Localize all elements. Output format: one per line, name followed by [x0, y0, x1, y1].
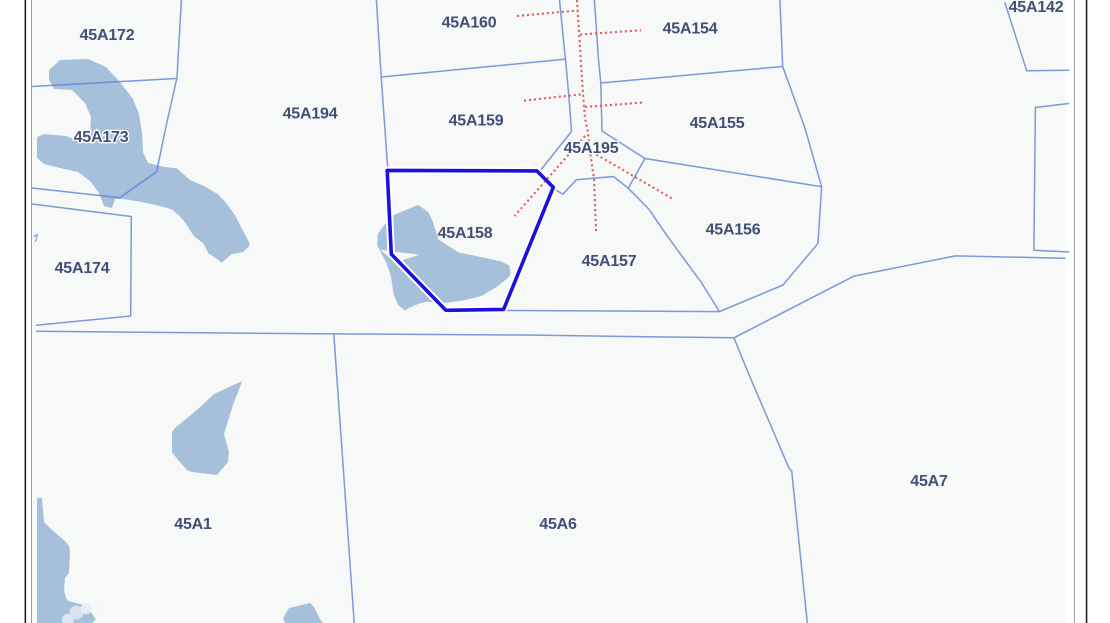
svg-text:45A160: 45A160: [442, 15, 497, 32]
svg-text:45A173: 45A173: [74, 129, 129, 146]
svg-text:45A1: 45A1: [174, 516, 212, 533]
svg-text:45A7: 45A7: [910, 473, 948, 490]
svg-text:45A158: 45A158: [438, 225, 493, 242]
svg-text:45A154: 45A154: [663, 21, 718, 38]
svg-text:45A156: 45A156: [706, 222, 761, 239]
svg-text:45A142: 45A142: [1009, 0, 1064, 16]
svg-text:45A195: 45A195: [564, 140, 619, 157]
svg-text:45A6: 45A6: [539, 516, 577, 533]
svg-text:45A159: 45A159: [449, 113, 504, 130]
svg-text:45A194: 45A194: [283, 106, 338, 123]
svg-text:45A174: 45A174: [55, 260, 110, 277]
svg-text:45A172: 45A172: [80, 27, 135, 44]
svg-text:45A155: 45A155: [690, 115, 745, 132]
svg-text:45A157: 45A157: [582, 253, 637, 270]
